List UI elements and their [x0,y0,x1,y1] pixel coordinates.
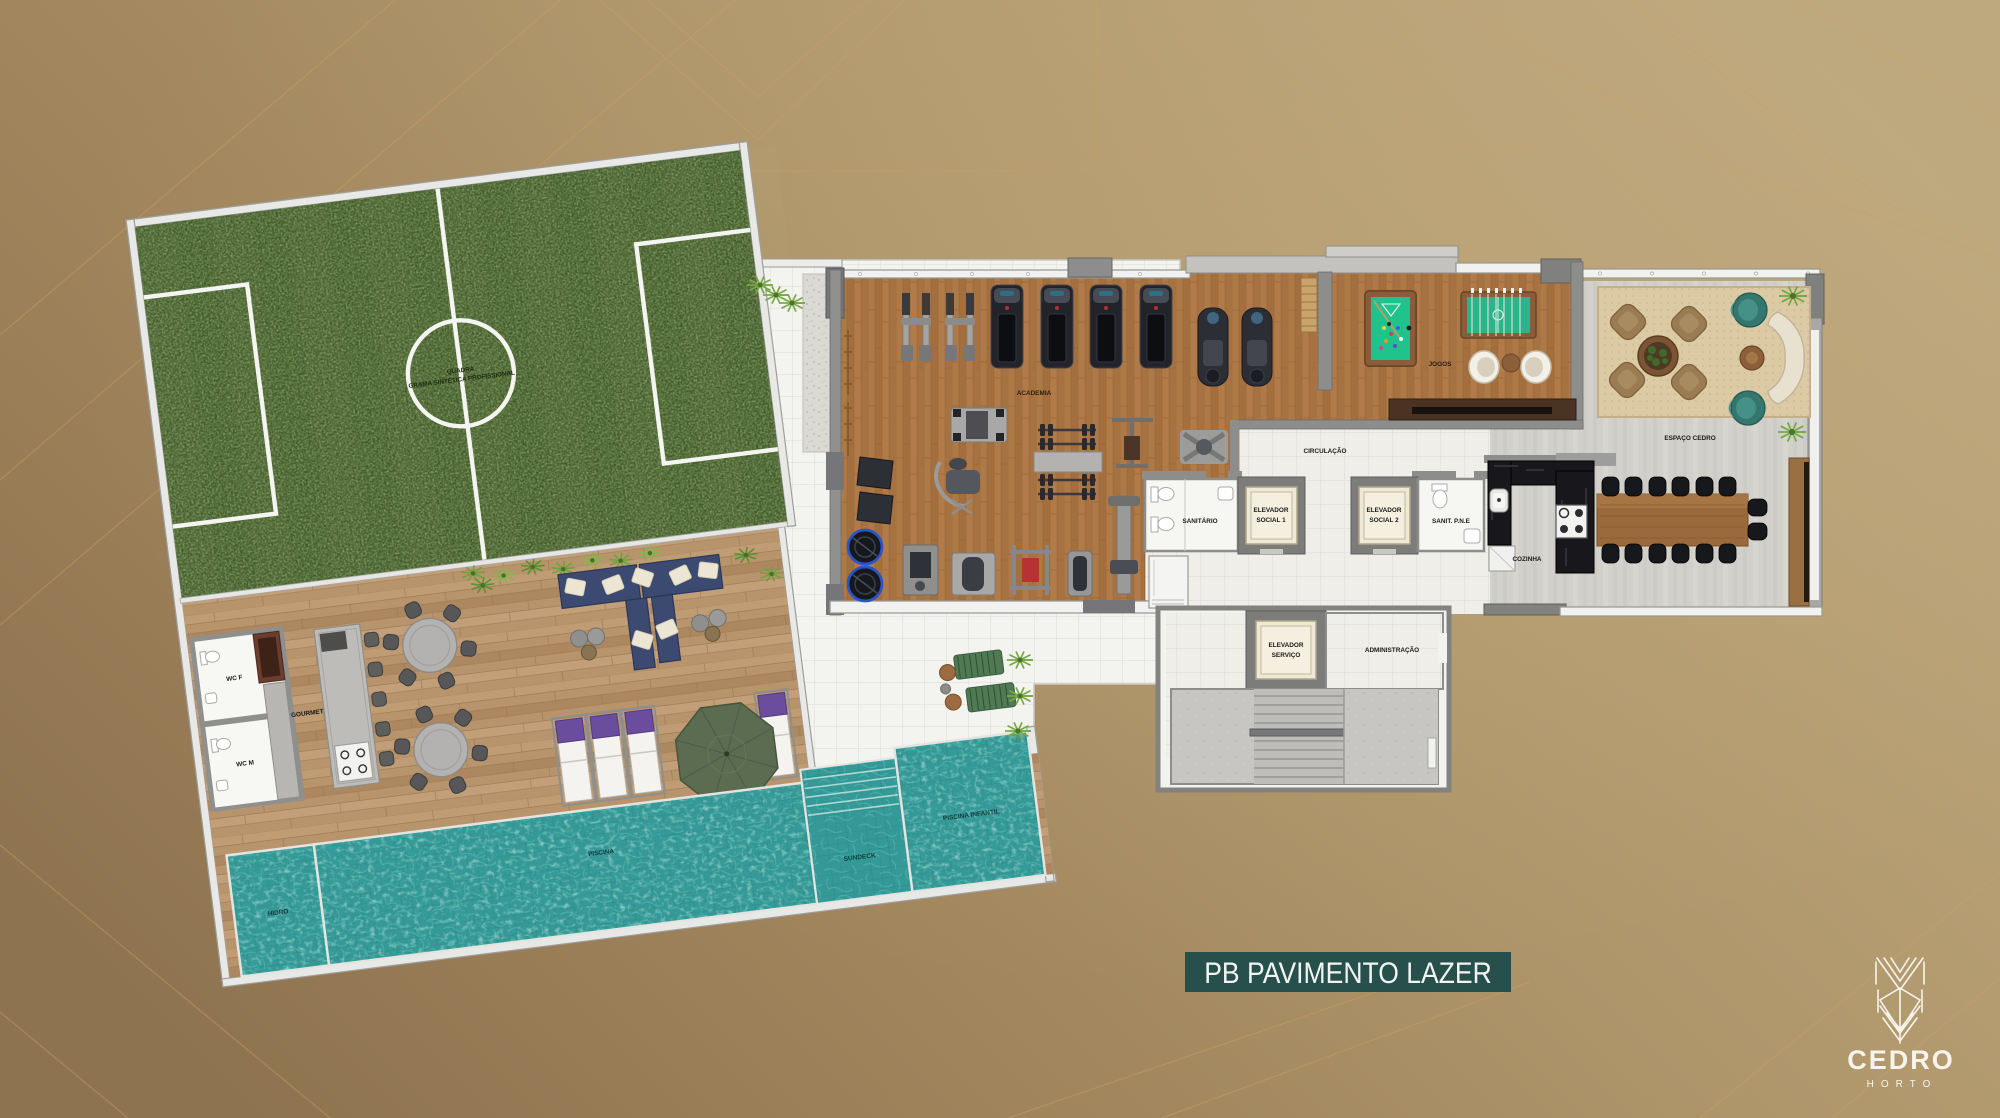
svg-text:SERVIÇO: SERVIÇO [1272,652,1301,659]
svg-text:ELEVADOR: ELEVADOR [1366,507,1401,514]
svg-text:ELEVADOR: ELEVADOR [1268,642,1303,649]
svg-text:PB PAVIMENTO LAZER: PB PAVIMENTO LAZER [1204,957,1492,990]
svg-text:ADMINISTRAÇÃO: ADMINISTRAÇÃO [1365,645,1419,654]
svg-text:ELEVADOR: ELEVADOR [1253,507,1288,514]
svg-text:ACADEMIA: ACADEMIA [1017,390,1052,397]
svg-text:SOCIAL 2: SOCIAL 2 [1369,517,1399,524]
svg-text:SANIT. P.N.E: SANIT. P.N.E [1432,518,1471,525]
svg-text:JOGOS: JOGOS [1429,361,1452,368]
svg-text:HORTO: HORTO [1867,1079,1938,1090]
svg-text:ESPAÇO CEDRO: ESPAÇO CEDRO [1664,435,1715,442]
svg-text:COZINHA: COZINHA [1512,556,1541,563]
svg-text:SANITÁRIO: SANITÁRIO [1182,516,1217,525]
svg-text:CEDRO: CEDRO [1847,1045,1955,1075]
svg-text:CIRCULAÇÃO: CIRCULAÇÃO [1304,446,1347,455]
svg-text:SOCIAL 1: SOCIAL 1 [1256,517,1286,524]
